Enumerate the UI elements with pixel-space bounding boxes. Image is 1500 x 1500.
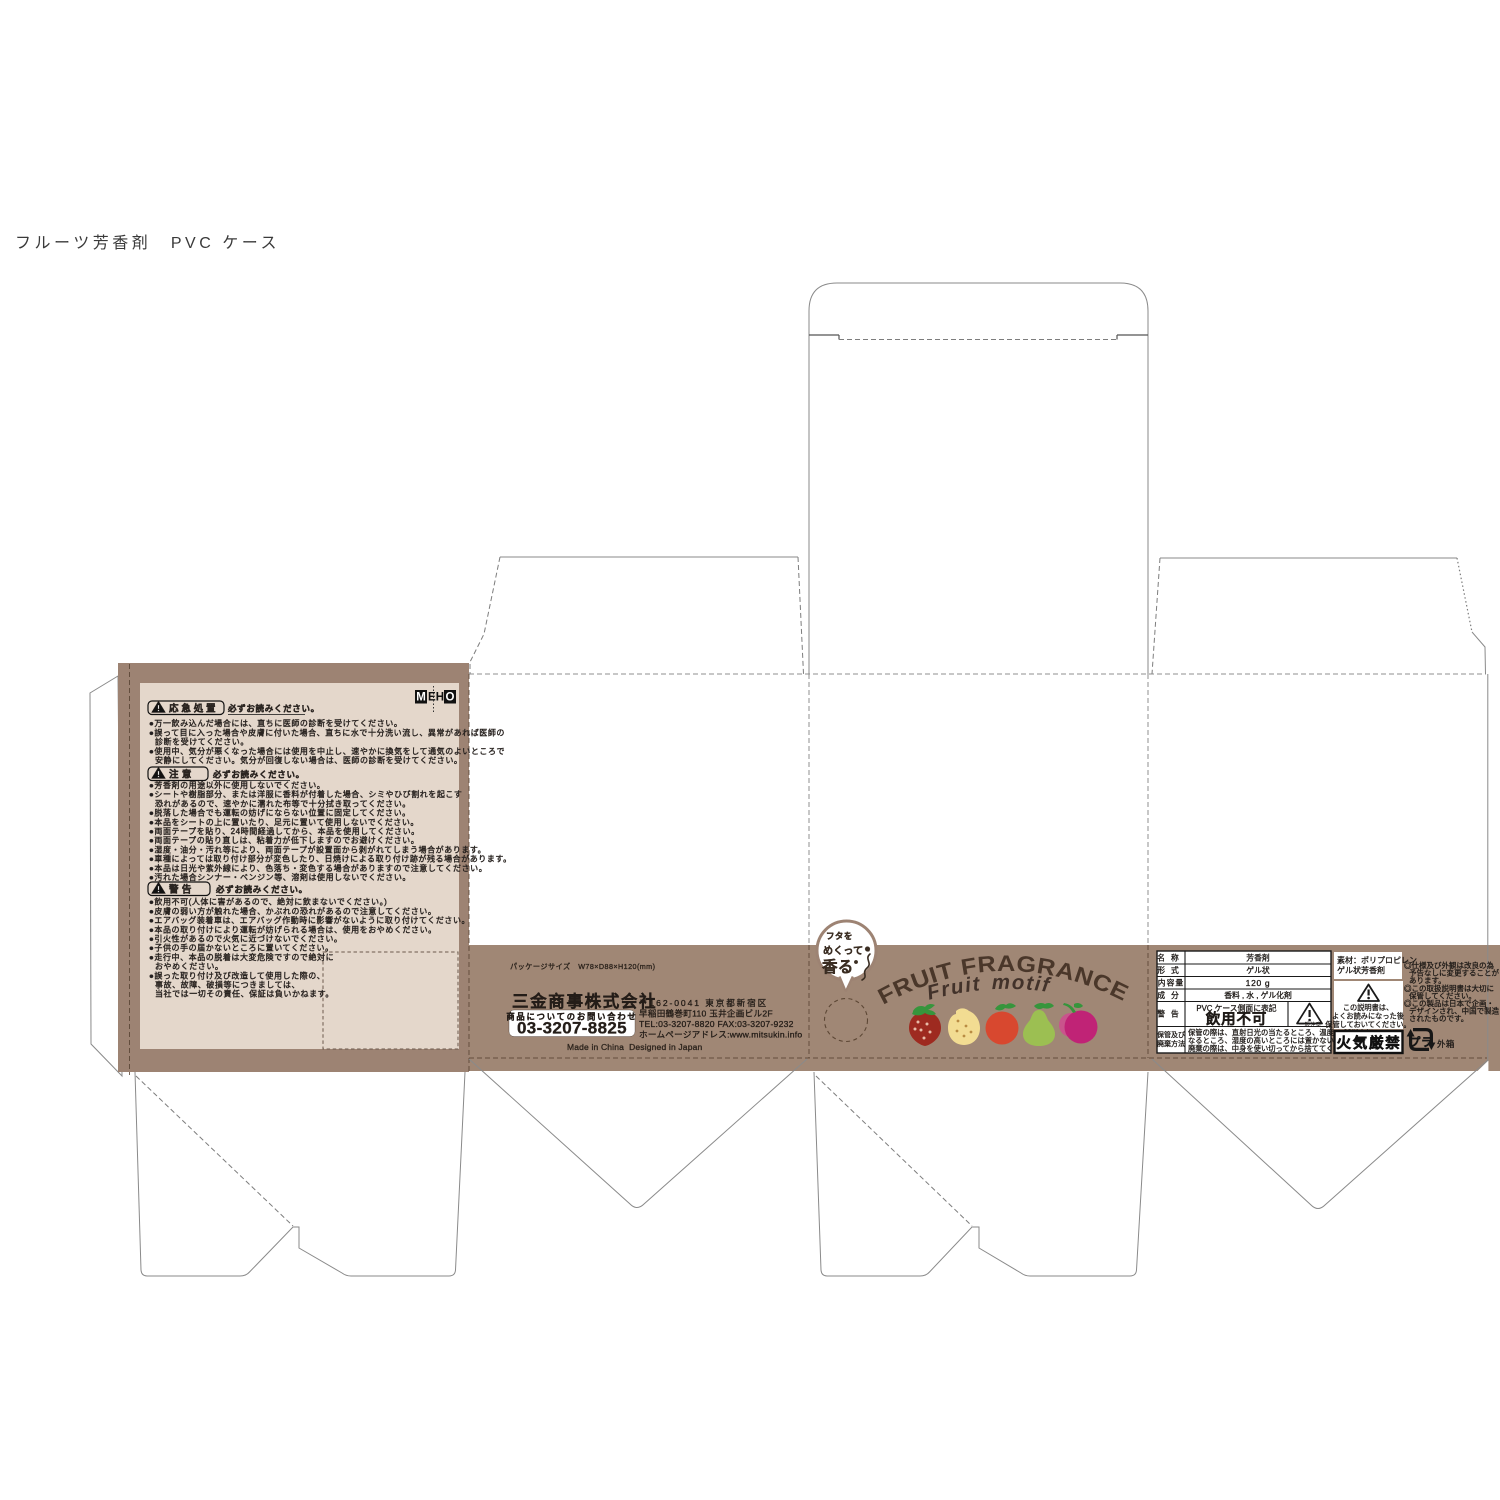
svg-text:Made in China Designed in Jap: Made in China Designed in Japan — [567, 1042, 702, 1052]
svg-text:E: E — [428, 692, 436, 704]
svg-text:●脱落した場合でも運転の妨げにならない位置に固定してください: ●脱落した場合でも運転の妨げにならない位置に固定してください。 — [149, 808, 411, 818]
svg-text:●飲用不可(人体に害があるので、絶対に飲まないでください。): ●飲用不可(人体に害があるので、絶対に飲まないでください。) — [149, 897, 387, 907]
svg-text:三金商事株式会社: 三金商事株式会社 — [512, 991, 657, 1011]
svg-text:●万一飲み込んだ場合には、直ちに医師の診断を受けてください。: ●万一飲み込んだ場合には、直ちに医師の診断を受けてください。 — [149, 718, 402, 728]
svg-text:TEL:03-3207-8820 FAX:03-3207-9: TEL:03-3207-8820 FAX:03-3207-9232 — [639, 1019, 794, 1029]
svg-text:恐れがあるので、速やかに濡れた布等で十分拭き取ってください。: 恐れがあるので、速やかに濡れた布等で十分拭き取ってください。 — [155, 798, 411, 808]
svg-text:フルーツ芳香剤 PVC ケース: フルーツ芳香剤 PVC ケース — [15, 234, 280, 252]
svg-text:●両面テープを貼り、24時間経過してから、本品を使用してくだ: ●両面テープを貼り、24時間経過してから、本品を使用してください。 — [149, 826, 420, 836]
svg-text:●走行中、本品の脱着は大変危険ですので絶対に: ●走行中、本品の脱着は大変危険ですので絶対に — [149, 952, 334, 962]
svg-text:早稲田鶴巻町110 玉井企画ビル2F: 早稲田鶴巻町110 玉井企画ビル2F — [639, 1008, 773, 1019]
svg-text:●汚れた場合シンナー・ベンジン等、溶剤は使用しないでください: ●汚れた場合シンナー・ベンジン等、溶剤は使用しないでください。 — [149, 872, 411, 882]
svg-text:注意: 注意 — [169, 769, 195, 781]
svg-text:●両面テープの貼り直しは、粘着力が低下しますのでお避けくださ: ●両面テープの貼り直しは、粘着力が低下しますのでお避けください。 — [149, 835, 419, 845]
svg-text:必ずお読みください。: 必ずお読みください。 — [212, 770, 305, 780]
svg-text:パッケージサイズ W78×D88×H120(mm): パッケージサイズ W78×D88×H120(mm) — [510, 962, 655, 971]
svg-text:●シートや樹脂部分、または洋服に香料が付着した場合、シミやひ: ●シートや樹脂部分、または洋服に香料が付着した場合、シミやひび割れを起こす — [149, 789, 462, 799]
svg-text:ホームページアドレス:www.mitsukin.info: ホームページアドレス:www.mitsukin.info — [639, 1030, 802, 1040]
svg-text:飲用不可: 飲用不可 — [1205, 1010, 1267, 1028]
svg-text:●引火性があるので火気に近づけないでください。: ●引火性があるので火気に近づけないでください。 — [149, 934, 342, 944]
svg-text:ゲル状: ゲル状 — [1246, 965, 1270, 975]
svg-text:●本品の取り付けにより運転が妨げられる場合は、使用をおやめく: ●本品の取り付けにより運転が妨げられる場合は、使用をおやめください。 — [149, 924, 437, 934]
svg-text:●湿度・油分・汚れ等により、両面テープが設置面から剥がれてし: ●湿度・油分・汚れ等により、両面テープが設置面から剥がれてしまう場合があります。 — [149, 844, 486, 854]
svg-text:応急処置: 応急処置 — [168, 703, 218, 715]
svg-text:芳香剤: 芳香剤 — [1246, 953, 1270, 963]
svg-text:廃棄方法: 廃棄方法 — [1157, 1039, 1185, 1048]
svg-text:必ずお読みください。: 必ずお読みください。 — [227, 704, 320, 714]
svg-text:香る: 香る — [822, 958, 854, 976]
svg-text:●子供の手の届かないところに置いてください。: ●子供の手の届かないところに置いてください。 — [149, 943, 334, 953]
svg-text:おやめください。: おやめください。 — [155, 962, 223, 971]
svg-text:〒162-0041 東京都新宿区: 〒162-0041 東京都新宿区 — [639, 997, 768, 1008]
svg-text:●皮膚の弱い方が触れた場合、かぶれの恐れがあるので注意してく: ●皮膚の弱い方が触れた場合、かぶれの恐れがあるので注意してください。 — [149, 906, 436, 916]
svg-text:保管しておいてください。: 保管しておいてください。 — [1325, 1020, 1410, 1029]
svg-text:診断を受けてください。: 診断を受けてください。 — [155, 737, 249, 747]
svg-text:●本品をシートの上に置いたり、足元に置いて使用しないでくださ: ●本品をシートの上に置いたり、足元に置いて使用しないでください。 — [149, 817, 419, 827]
svg-text:プラ: プラ — [1409, 1035, 1433, 1049]
svg-text:120 g: 120 g — [1246, 978, 1271, 988]
svg-text:●芳香剤の用途以外に使用しないでください。: ●芳香剤の用途以外に使用しないでください。 — [149, 780, 325, 790]
svg-text:火気厳禁: 火気厳禁 — [1337, 1034, 1402, 1052]
svg-text:●本品は日光や紫外線により、色落ち・変色する場合がありますの: ●本品は日光や紫外線により、色落ち・変色する場合がありますので注意してください。 — [149, 863, 487, 873]
svg-text:されたものです。: されたものです。 — [1409, 1014, 1468, 1023]
svg-text:警告: 警告 — [169, 884, 195, 896]
svg-text:●誤って目に入った場合や皮膚に付いた場合、直ちに水で十分洗い: ●誤って目に入った場合や皮膚に付いた場合、直ちに水で十分洗い流し、異常があれば医… — [149, 727, 505, 737]
svg-text:必ずお読みください。: 必ずお読みください。 — [215, 885, 308, 895]
svg-text:当社では一切その責任、保証は負いかねます。: 当社では一切その責任、保証は負いかねます。 — [155, 989, 334, 999]
svg-text:外箱: 外箱 — [1437, 1039, 1455, 1049]
svg-text:●エアバッグ装着車は、エアバッグ作動時に影響がないように取り: ●エアバッグ装着車は、エアバッグ作動時に影響がないように取り付けてください。 — [149, 915, 470, 925]
svg-text:名称: 名称 — [1157, 953, 1185, 963]
svg-text:フタを: フタを — [826, 931, 853, 941]
svg-text:●誤った取り付け及び改造して使用した際の、: ●誤った取り付け及び改造して使用した際の、 — [149, 970, 325, 980]
svg-text:03-3207-8825: 03-3207-8825 — [517, 1019, 627, 1038]
svg-text:ゲル状芳香剤: ゲル状芳香剤 — [1337, 965, 1385, 975]
svg-text:警告: 警告 — [1157, 1009, 1185, 1019]
svg-text:内容量: 内容量 — [1158, 978, 1184, 988]
svg-text:●使用中、気分が悪くなった場合には使用を中止し、速やかに換気: ●使用中、気分が悪くなった場合には使用を中止し、速やかに換気をして通気のよいとこ… — [149, 746, 505, 756]
svg-text:O: O — [446, 692, 455, 704]
svg-text:香料 , 水 , ゲル化剤: 香料 , 水 , ゲル化剤 — [1224, 990, 1292, 1000]
svg-text:事故、故障、破損等につきましては、: 事故、故障、破損等につきましては、 — [155, 980, 300, 990]
svg-text:H: H — [436, 692, 444, 704]
svg-text:M: M — [416, 692, 426, 704]
svg-text:形式: 形式 — [1157, 965, 1185, 975]
svg-text:保管及び: 保管及び — [1157, 1030, 1185, 1039]
svg-text:安静にしてください。気分が回復しない場合は、医師の診断を受け: 安静にしてください。気分が回復しない場合は、医師の診断を受けてください。 — [155, 755, 462, 765]
svg-text:●車種によっては取り付け部分が変色したり、日焼けによる取り付: ●車種によっては取り付け部分が変色したり、日焼けによる取り付け跡が残る場合があり… — [149, 854, 512, 864]
svg-text:成分: 成分 — [1157, 990, 1185, 1000]
